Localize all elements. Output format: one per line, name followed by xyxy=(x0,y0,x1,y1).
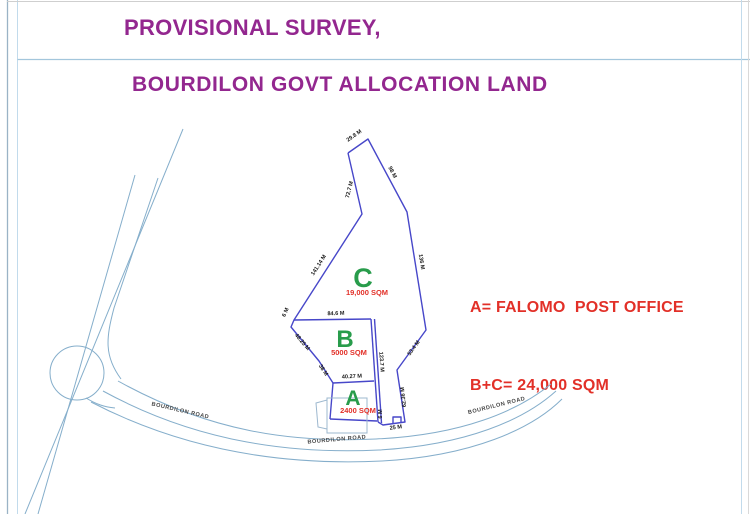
dimension-label: 84.6 M xyxy=(327,311,345,318)
dimension-label: 6 M xyxy=(378,409,384,419)
dimension-label: 29.8 M xyxy=(346,129,364,144)
parcel-divider-b-c xyxy=(294,319,371,320)
plot-a-top-edge xyxy=(333,381,374,383)
dimension-label: 25 M xyxy=(389,424,402,432)
region-area-c: 19,000 SQM xyxy=(346,288,388,297)
region-area-a: 2400 SQM xyxy=(340,406,376,415)
dimension-label: 40.27 M xyxy=(342,373,363,380)
road-diagonal-edge-2 xyxy=(38,175,135,514)
dimension-label: 136 M xyxy=(417,254,425,271)
dimension-label: 48.25 M xyxy=(293,333,311,353)
dimension-label: 141.14 M xyxy=(310,254,328,277)
plan-drawing: 29.8 M98 M72.7 M141.14 M136 M84.6 M6 M48… xyxy=(0,0,750,514)
road-diagonal-edge-1 xyxy=(25,129,183,514)
region-area-b: 5000 SQM xyxy=(331,348,367,357)
roundabout xyxy=(50,346,104,400)
plot-a-bottom-edge xyxy=(330,419,377,421)
dimension-label: 53.4 M xyxy=(407,339,422,357)
dimension-label: 62.36 M xyxy=(400,386,408,407)
plot-a-left-edge xyxy=(330,383,333,419)
small-building-outline xyxy=(316,400,327,429)
page-borders xyxy=(7,0,750,514)
road-name-label: BOURDILON ROAD xyxy=(307,434,366,445)
dimension-label: 72.7 M xyxy=(345,180,355,198)
dimension-label: 38 M xyxy=(317,364,329,378)
dimension-label: 6 M xyxy=(281,307,290,318)
survey-plan-page: PROVISIONAL SURVEY, BOURDILON GOVT ALLOC… xyxy=(0,0,750,514)
